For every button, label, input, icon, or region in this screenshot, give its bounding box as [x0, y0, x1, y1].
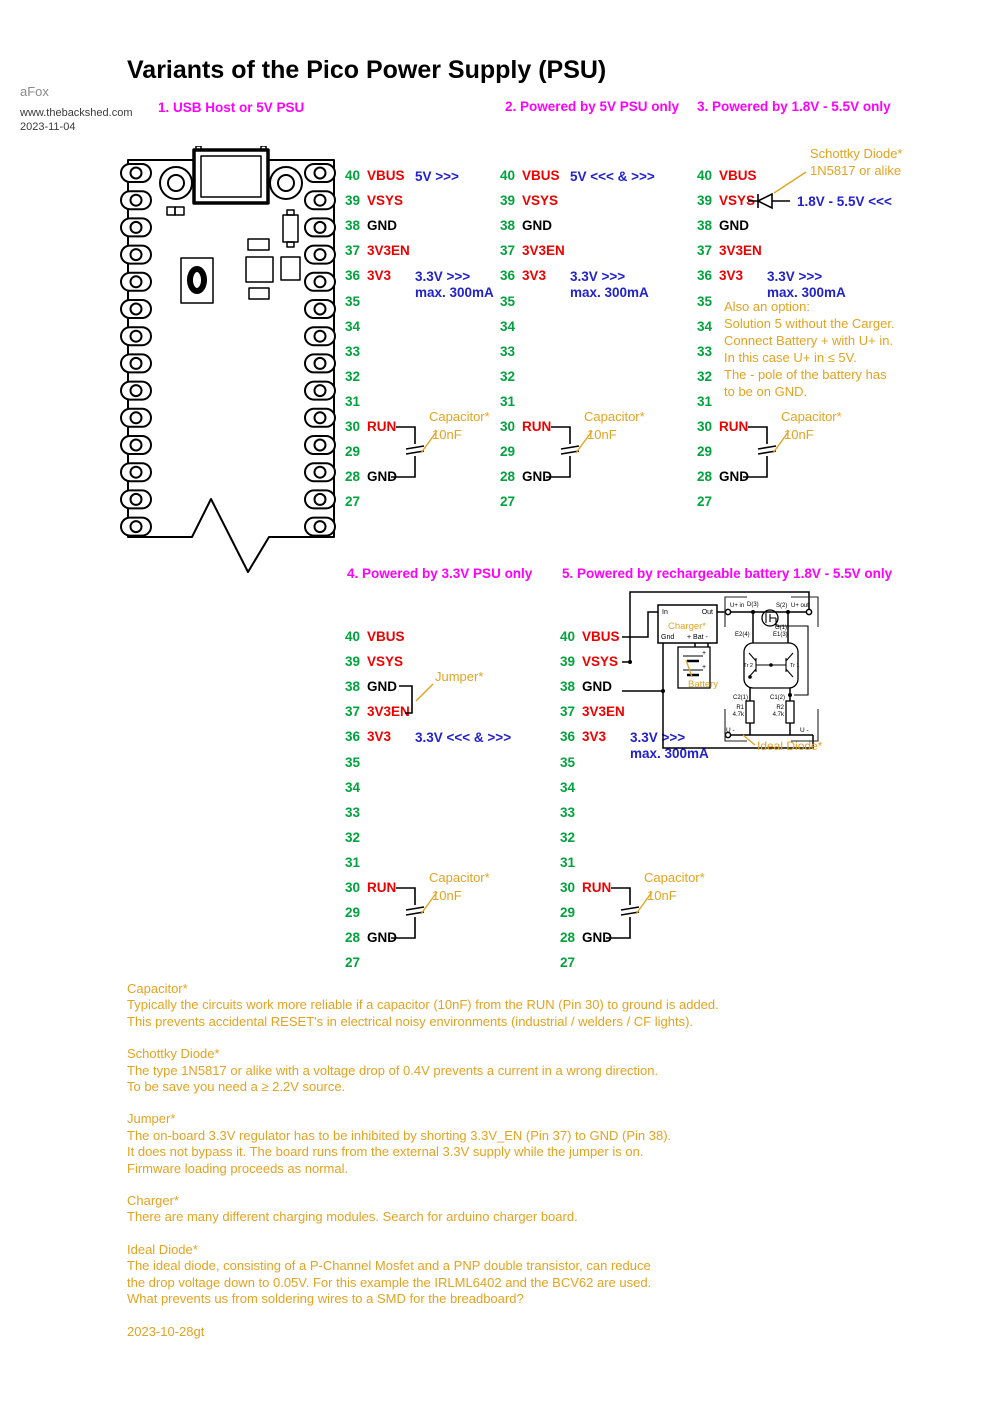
pin-row-40: 40VBUS [345, 629, 405, 645]
pin-number: 29 [500, 444, 520, 460]
emitter1-label: E1(3) [773, 632, 788, 638]
footnote-line: There are many different charging module… [127, 1209, 907, 1225]
pin-number: 30 [560, 880, 580, 896]
footnote-line: It does not bypass it. The board runs fr… [127, 1144, 907, 1160]
pin-number: 35 [560, 755, 580, 771]
pin-number: 36 [345, 729, 365, 745]
document-date: 2023-11-04 [20, 121, 75, 133]
pin-number: 36 [345, 268, 365, 284]
transistor2-label: Tr 2 [743, 663, 753, 669]
pin-number: 31 [500, 394, 520, 410]
pin-number: 39 [345, 193, 365, 209]
pin-number: 35 [345, 294, 365, 310]
battery-label: Battery [688, 679, 718, 690]
footnote-line: The ideal diode, consisting of a P-Chann… [127, 1258, 907, 1274]
pin-number: 33 [697, 344, 717, 360]
option-note-line: Also an option: [724, 299, 895, 316]
footnote-line: The on-board 3.3V regulator has to be in… [127, 1128, 907, 1144]
pin-row-37: 373V3EN [500, 243, 565, 259]
u-minus-left-label: U - [726, 727, 735, 734]
pico-board-drawing [117, 146, 339, 586]
footnotes: Capacitor*Typically the circuits work mo… [127, 981, 907, 1340]
pin-number: 27 [697, 494, 717, 510]
pin-number: 36 [560, 729, 580, 745]
footer-date: 2023-10-28gt [127, 1324, 907, 1340]
pin-row-33: 33 [500, 344, 520, 360]
pin-row-37: 373V3EN [345, 243, 410, 259]
charger-bat-label: + Bat - [687, 634, 708, 641]
pin-number: 27 [345, 955, 365, 971]
pin-number: 40 [697, 168, 717, 184]
pin-number: 39 [345, 654, 365, 670]
pin-number: 33 [500, 344, 520, 360]
pin-number: 37 [345, 243, 365, 259]
pin-row-40: 40VBUS [500, 168, 560, 184]
footnote: Charger*There are many different chargin… [127, 1193, 907, 1226]
battery-plus-bottom: + [702, 664, 706, 671]
pin-number: 37 [697, 243, 717, 259]
pin-row-31: 31 [345, 394, 365, 410]
footnote-title: Jumper* [127, 1111, 907, 1127]
pin-row-27: 27 [345, 494, 365, 510]
pin-row-35: 35 [345, 294, 365, 310]
pin-number: 36 [500, 268, 520, 284]
pin-row-40: 40VBUS [345, 168, 405, 184]
footnote-title: Schottky Diode* [127, 1046, 907, 1062]
mosfet-source-label: S(2) [776, 603, 787, 609]
u-plus-in-label: U+ in [730, 603, 744, 609]
pin-number: 27 [560, 955, 580, 971]
pin-row-29: 29 [560, 905, 580, 921]
pin-number: 32 [345, 830, 365, 846]
pin-number: 37 [345, 704, 365, 720]
pin-label: 3V3EN [719, 243, 762, 258]
footnote-line: This prevents accidental RESET's in elec… [127, 1014, 907, 1030]
pin-row-34: 34 [697, 319, 717, 335]
jumper-graphic: Jumper* [390, 660, 540, 730]
pin-row-32: 32 [345, 369, 365, 385]
pin-label: GND [719, 218, 749, 233]
footnote-title: Charger* [127, 1193, 907, 1209]
voltage-annotation: 3.3V >>>max. 300mA [415, 269, 494, 300]
pin-number: 39 [560, 654, 580, 670]
pin-row-39: 39VSYS [345, 193, 403, 209]
pin-row-31: 31 [697, 394, 717, 410]
pin-row-34: 34 [500, 319, 520, 335]
pin-row-27: 27 [345, 955, 365, 971]
option-note-line: In this case U+ in ≤ 5V. [724, 350, 895, 367]
pin-number: 34 [345, 780, 365, 796]
charger-in-label: In [662, 609, 668, 616]
pin-row-32: 32 [345, 830, 365, 846]
capacitor-value: 10nF [432, 888, 462, 903]
charger-out-label: Out [702, 609, 713, 616]
variant-3-heading: 3. Powered by 1.8V - 5.5V only [697, 99, 891, 114]
pin-row-27: 27 [560, 955, 580, 971]
variant-1-heading: 1. USB Host or 5V PSU [158, 100, 304, 115]
option-note-line: Solution 5 without the Carger. [724, 316, 895, 333]
pin-number: 35 [500, 294, 520, 310]
variant-2-heading: 2. Powered by 5V PSU only [505, 99, 679, 114]
schottky-diode-graphic: Schottky Diode* 1N5817 or alike 1.8V - 5… [740, 140, 990, 218]
transistor1-label: Tr 1 [790, 663, 800, 669]
variant-4-heading: 4. Powered by 3.3V PSU only [347, 566, 532, 581]
pin-row-36: 363V3 [697, 268, 743, 284]
pin-number: 32 [345, 369, 365, 385]
capacitor-graphic: Capacitor*10nF [540, 406, 700, 496]
jumper-label: Jumper* [435, 669, 483, 684]
pin-label: 3V3 [367, 729, 391, 744]
pin-number: 40 [345, 168, 365, 184]
battery-plus-top: + [702, 650, 706, 657]
pin-number: 37 [500, 243, 520, 259]
pin-number: 39 [500, 193, 520, 209]
capacitor-value: 10nF [432, 427, 462, 442]
pin-number: 28 [500, 469, 520, 485]
footnote-line: Firmware loading proceeds as normal. [127, 1161, 907, 1177]
pin-number: 34 [697, 319, 717, 335]
pin-row-33: 33 [697, 344, 717, 360]
pin-row-34: 34 [345, 780, 365, 796]
option-note-line: Connect Battery + with U+ in. [724, 333, 895, 350]
pin-label: VBUS [367, 629, 405, 644]
pin-number: 32 [500, 369, 520, 385]
battery-option-note: Also an option: Solution 5 without the C… [724, 299, 895, 400]
mosfet-drain-label: D(3) [747, 602, 759, 608]
voltage-annotation: 3.3V <<< & >>> [415, 730, 511, 746]
pin-row-29: 29 [697, 444, 717, 460]
footnote-line: Typically the circuits work more reliabl… [127, 997, 907, 1013]
pin-row-39: 39VSYS [500, 193, 558, 209]
diode-voltage-annotation: 1.8V - 5.5V <<< [797, 194, 892, 209]
pin-row-35: 35 [500, 294, 520, 310]
pin-number: 38 [697, 218, 717, 234]
footnote-title: Ideal Diode* [127, 1242, 907, 1258]
pin-number: 32 [560, 830, 580, 846]
pin-row-35: 35 [697, 294, 717, 310]
collector2-label: C2(1) [733, 695, 748, 701]
pin-number: 27 [500, 494, 520, 510]
pin-row-33: 33 [560, 805, 580, 821]
capacitor-value: 10nF [647, 888, 677, 903]
pin-number: 29 [697, 444, 717, 460]
pin-label: VSYS [367, 193, 403, 208]
emitter2-label: E2(4) [735, 632, 750, 638]
pin-number: 32 [697, 369, 717, 385]
option-note-line: The - pole of the battery has [724, 367, 895, 384]
pin-number: 30 [345, 880, 365, 896]
footnote: Jumper*The on-board 3.3V regulator has t… [127, 1111, 907, 1177]
pin-row-37: 373V3EN [697, 243, 762, 259]
pin-label: VBUS [367, 168, 405, 183]
pin-row-33: 33 [345, 344, 365, 360]
u-minus-right-label: U - [800, 727, 809, 734]
pin-row-27: 27 [500, 494, 520, 510]
pin-number: 29 [345, 444, 365, 460]
pin-row-29: 29 [500, 444, 520, 460]
pin-number: 38 [560, 679, 580, 695]
capacitor-label: Capacitor* [584, 409, 645, 424]
footnote-line: the drop voltage down to 0.05V. For this… [127, 1275, 907, 1291]
resistor1-value: 4.7k [733, 712, 745, 718]
pin-label: 3V3 [719, 268, 743, 283]
footnote-line: What prevents us from soldering wires to… [127, 1291, 907, 1307]
variant-5-heading: 5. Powered by rechargeable battery 1.8V … [562, 566, 892, 581]
pin-number: 29 [345, 905, 365, 921]
pin-row-34: 34 [560, 780, 580, 796]
capacitor-label: Capacitor* [429, 409, 490, 424]
collector1-label: C1(2) [770, 695, 785, 701]
mosfet-gate-label: G(1) [775, 625, 787, 631]
pin-number: 30 [500, 419, 520, 435]
pin-row-27: 27 [697, 494, 717, 510]
pin-number: 34 [560, 780, 580, 796]
pin-number: 28 [697, 469, 717, 485]
pin-row-35: 35 [345, 755, 365, 771]
pin-row-34: 34 [345, 319, 365, 335]
schottky-diode-label: Schottky Diode* [810, 146, 903, 161]
pin-row-29: 29 [345, 444, 365, 460]
pin-number: 28 [560, 930, 580, 946]
pin-row-31: 31 [500, 394, 520, 410]
pin-number: 40 [345, 629, 365, 645]
voltage-annotation: 5V >>> [415, 169, 459, 185]
pin-row-38: 38GND [697, 218, 749, 234]
capacitor-label: Capacitor* [429, 870, 490, 885]
charger-circuit-graphic: In Out Charger* Gnd + Bat - + + Battery … [595, 583, 835, 769]
pin-row-38: 38GND [345, 218, 397, 234]
pin-number: 30 [345, 419, 365, 435]
pin-label: GND [522, 218, 552, 233]
pin-label: 3V3 [522, 268, 546, 283]
pin-number: 33 [345, 344, 365, 360]
capacitor-label: Capacitor* [644, 870, 705, 885]
pin-number: 38 [500, 218, 520, 234]
pin-number: 34 [500, 319, 520, 335]
pin-row-31: 31 [345, 855, 365, 871]
footnote-line: To be save you need a ≥ 2.2V source. [127, 1079, 907, 1095]
capacitor-value: 10nF [587, 427, 617, 442]
pin-label: VBUS [522, 168, 560, 183]
pin-number: 30 [697, 419, 717, 435]
pin-label: GND [367, 218, 397, 233]
pin-number: 38 [345, 218, 365, 234]
pin-label: VSYS [522, 193, 558, 208]
charger-gnd-label: Gnd [661, 634, 674, 641]
pin-label: 3V3EN [367, 243, 410, 258]
capacitor-label: Capacitor* [781, 409, 842, 424]
pin-number: 33 [345, 805, 365, 821]
pin-number: 33 [560, 805, 580, 821]
pin-number: 40 [560, 629, 580, 645]
pin-row-29: 29 [345, 905, 365, 921]
pin-number: 38 [345, 679, 365, 695]
pin-number: 28 [345, 469, 365, 485]
charger-label: Charger* [668, 621, 706, 632]
pin-row-31: 31 [560, 855, 580, 871]
pin-number: 35 [345, 755, 365, 771]
pin-number: 28 [345, 930, 365, 946]
pin-row-32: 32 [500, 369, 520, 385]
footnote-title: Capacitor* [127, 981, 907, 997]
pin-row-36: 363V3 [345, 729, 391, 745]
ideal-diode-label: Ideal Diode* [757, 739, 823, 753]
footnote: Schottky Diode*The type 1N5817 or alike … [127, 1046, 907, 1095]
option-note-line: to be on GND. [724, 384, 895, 401]
capacitor-value: 10nF [784, 427, 814, 442]
pin-row-35: 35 [560, 755, 580, 771]
page-title: Variants of the Pico Power Supply (PSU) [127, 56, 606, 85]
resistor1-label: R1 [736, 705, 744, 711]
pin-number: 31 [345, 394, 365, 410]
pin-number: 35 [697, 294, 717, 310]
voltage-annotation: 3.3V >>>max. 300mA [570, 269, 649, 300]
pin-row-36: 363V3 [500, 268, 546, 284]
capacitor-graphic: Capacitor*10nF [737, 406, 897, 496]
capacitor-graphic: Capacitor*10nF [385, 867, 545, 957]
pin-number: 39 [697, 193, 717, 209]
pin-number: 31 [560, 855, 580, 871]
resistor2-label: R2 [776, 705, 784, 711]
pin-number: 34 [345, 319, 365, 335]
resistor2-value: 4.7k [773, 712, 785, 718]
footnote: Ideal Diode*The ideal diode, consisting … [127, 1242, 907, 1308]
pin-row-33: 33 [345, 805, 365, 821]
footnote: Capacitor*Typically the circuits work mo… [127, 981, 907, 1030]
pin-number: 36 [697, 268, 717, 284]
pin-number: 31 [345, 855, 365, 871]
pin-row-38: 38GND [500, 218, 552, 234]
u-plus-out-label: U+ out [791, 603, 809, 609]
voltage-annotation: 3.3V >>>max. 300mA [767, 269, 846, 300]
pin-row-32: 32 [697, 369, 717, 385]
voltage-annotation: 5V <<< & >>> [570, 169, 655, 185]
author: aFox [20, 84, 49, 99]
footnote-line: The type 1N5817 or alike with a voltage … [127, 1063, 907, 1079]
website-link[interactable]: www.thebackshed.com [20, 107, 133, 119]
pico-psu-diagram: Variants of the Pico Power Supply (PSU) … [0, 0, 992, 1403]
pin-number: 37 [560, 704, 580, 720]
capacitor-graphic: Capacitor*10nF [600, 867, 760, 957]
pin-label: 3V3 [367, 268, 391, 283]
pin-label: 3V3EN [522, 243, 565, 258]
pin-number: 40 [500, 168, 520, 184]
pin-number: 29 [560, 905, 580, 921]
pin-number: 31 [697, 394, 717, 410]
pin-row-36: 363V3 [345, 268, 391, 284]
pin-number: 27 [345, 494, 365, 510]
schottky-diode-type: 1N5817 or alike [810, 163, 901, 178]
pin-row-32: 32 [560, 830, 580, 846]
